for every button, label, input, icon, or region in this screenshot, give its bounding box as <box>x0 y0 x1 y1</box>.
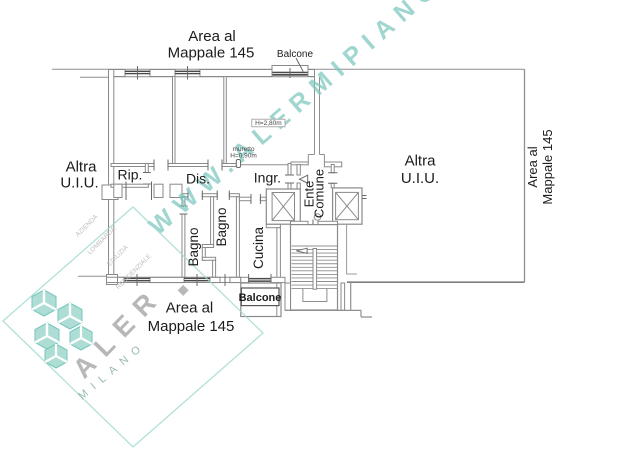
svg-text:Comune: Comune <box>312 169 327 218</box>
svg-text:Area al: Area al <box>188 28 236 45</box>
svg-text:H=0,90m: H=0,90m <box>230 153 257 160</box>
svg-text:Balcone: Balcone <box>239 292 282 304</box>
svg-text:Ingr.: Ingr. <box>254 170 281 186</box>
svg-text:Area al: Area al <box>525 146 540 187</box>
svg-text:Mappale 145: Mappale 145 <box>148 318 235 335</box>
svg-text:Bagno: Bagno <box>186 227 201 266</box>
svg-text:Cucina: Cucina <box>251 227 266 270</box>
svg-text:Bagno: Bagno <box>214 207 229 246</box>
svg-text:Mappale 145: Mappale 145 <box>540 129 555 204</box>
svg-text:Area al: Area al <box>166 300 214 317</box>
svg-text:U.I.U.: U.I.U. <box>401 170 439 187</box>
svg-text:Balcone: Balcone <box>277 49 314 60</box>
svg-text:Rip.: Rip. <box>118 167 143 183</box>
svg-text:Mappale 145: Mappale 145 <box>168 45 255 62</box>
svg-text:Altra: Altra <box>66 159 98 176</box>
svg-text:Altra: Altra <box>405 153 437 170</box>
svg-text:U.I.U.: U.I.U. <box>60 175 98 192</box>
svg-text:Dis.: Dis. <box>186 171 210 187</box>
svg-text:H=2,80m: H=2,80m <box>255 120 282 127</box>
